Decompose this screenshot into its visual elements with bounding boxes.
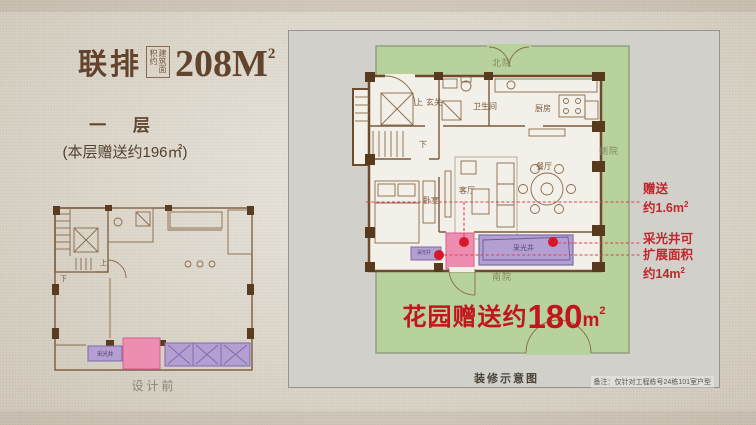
annotation1-unit: m — [673, 201, 684, 215]
area-number: 208M — [175, 43, 268, 85]
room-bedroom-label: 卧室 — [423, 197, 439, 205]
lightwell-small-label: 采光井 — [417, 251, 431, 256]
garden-gift-value: 180 — [527, 298, 582, 335]
area-superscript: 2 — [268, 46, 276, 62]
room-down-label: 下 — [419, 141, 427, 149]
garden-north-label: 北院 — [492, 59, 512, 68]
room-dining-label: 餐厅 — [536, 163, 552, 171]
annotation1-line1: 赠送 — [643, 182, 668, 196]
annotation2-sup: 2 — [681, 266, 685, 275]
garden-south-label: 南院 — [492, 273, 512, 282]
bottom-texture-band — [0, 411, 756, 425]
before-floor-plan: 下 上 采光井 — [48, 200, 260, 378]
room-kitchen-label: 厨房 — [535, 105, 551, 113]
series-label: 联排 — [78, 51, 142, 80]
annotation1-sup: 2 — [684, 200, 688, 209]
area-value: 208M2 — [175, 48, 275, 80]
before-plan-down-label: 下 — [60, 276, 67, 283]
garden-gift-banner: 花园赠送约180m2 — [379, 297, 629, 336]
room-entry-label: 玄关 — [426, 99, 442, 107]
annotation2-line3: 约14 — [643, 267, 669, 281]
annotation-lightwell-expand: 采光井可 扩展面积 约14m2 — [643, 231, 693, 282]
unit-title: 联排 建筑面积约 208M2 — [78, 46, 275, 80]
area-note-vertical: 建筑面积约 — [149, 49, 167, 75]
schematic-note: 备注：仅针对工程栋号24栋101室户型 — [591, 376, 714, 388]
area-note-box: 建筑面积约 — [146, 46, 170, 78]
before-plan-lightwell-label: 采光井 — [88, 349, 122, 358]
annotation2-unit: m — [669, 267, 680, 281]
floor-label: 一 层 — [55, 111, 195, 136]
garden-gift-sup: 2 — [599, 305, 605, 317]
room-up-label: 上 — [415, 99, 423, 107]
garden-gift-unit: m — [583, 310, 600, 331]
schematic-caption: 装修示意图 — [439, 370, 574, 386]
annotation1-line2: 约1.6 — [643, 201, 673, 215]
top-texture-band — [0, 0, 756, 12]
room-living-label: 客厅 — [459, 187, 475, 195]
annotation2-line1: 采光井可 — [643, 232, 693, 246]
before-plan-caption: 设计前 — [48, 377, 260, 394]
before-plan-up-label: 上 — [100, 260, 107, 267]
lightwell-label: 采光井 — [513, 245, 534, 252]
annotation-gift-1-6: 赠送 约1.6m2 — [643, 181, 688, 216]
annotation2-line2: 扩展面积 — [643, 248, 693, 262]
garden-gift-prefix: 花园赠送约 — [402, 304, 527, 331]
before-floor-plan-drawing — [48, 200, 260, 378]
garden-side-label: 侧院 — [599, 147, 619, 156]
floor-bonus-text: (本层赠送约196㎡) — [25, 141, 225, 162]
room-bath-label: 卫生间 — [473, 103, 497, 111]
poster-canvas: 联排 建筑面积约 208M2 一 层 (本层赠送约196㎡) — [0, 0, 756, 425]
schematic-panel: 北院 侧院 南院 上 玄关 卫生间 厨房 下 客厅 餐厅 卧室 采光井 采光井 … — [288, 30, 720, 388]
